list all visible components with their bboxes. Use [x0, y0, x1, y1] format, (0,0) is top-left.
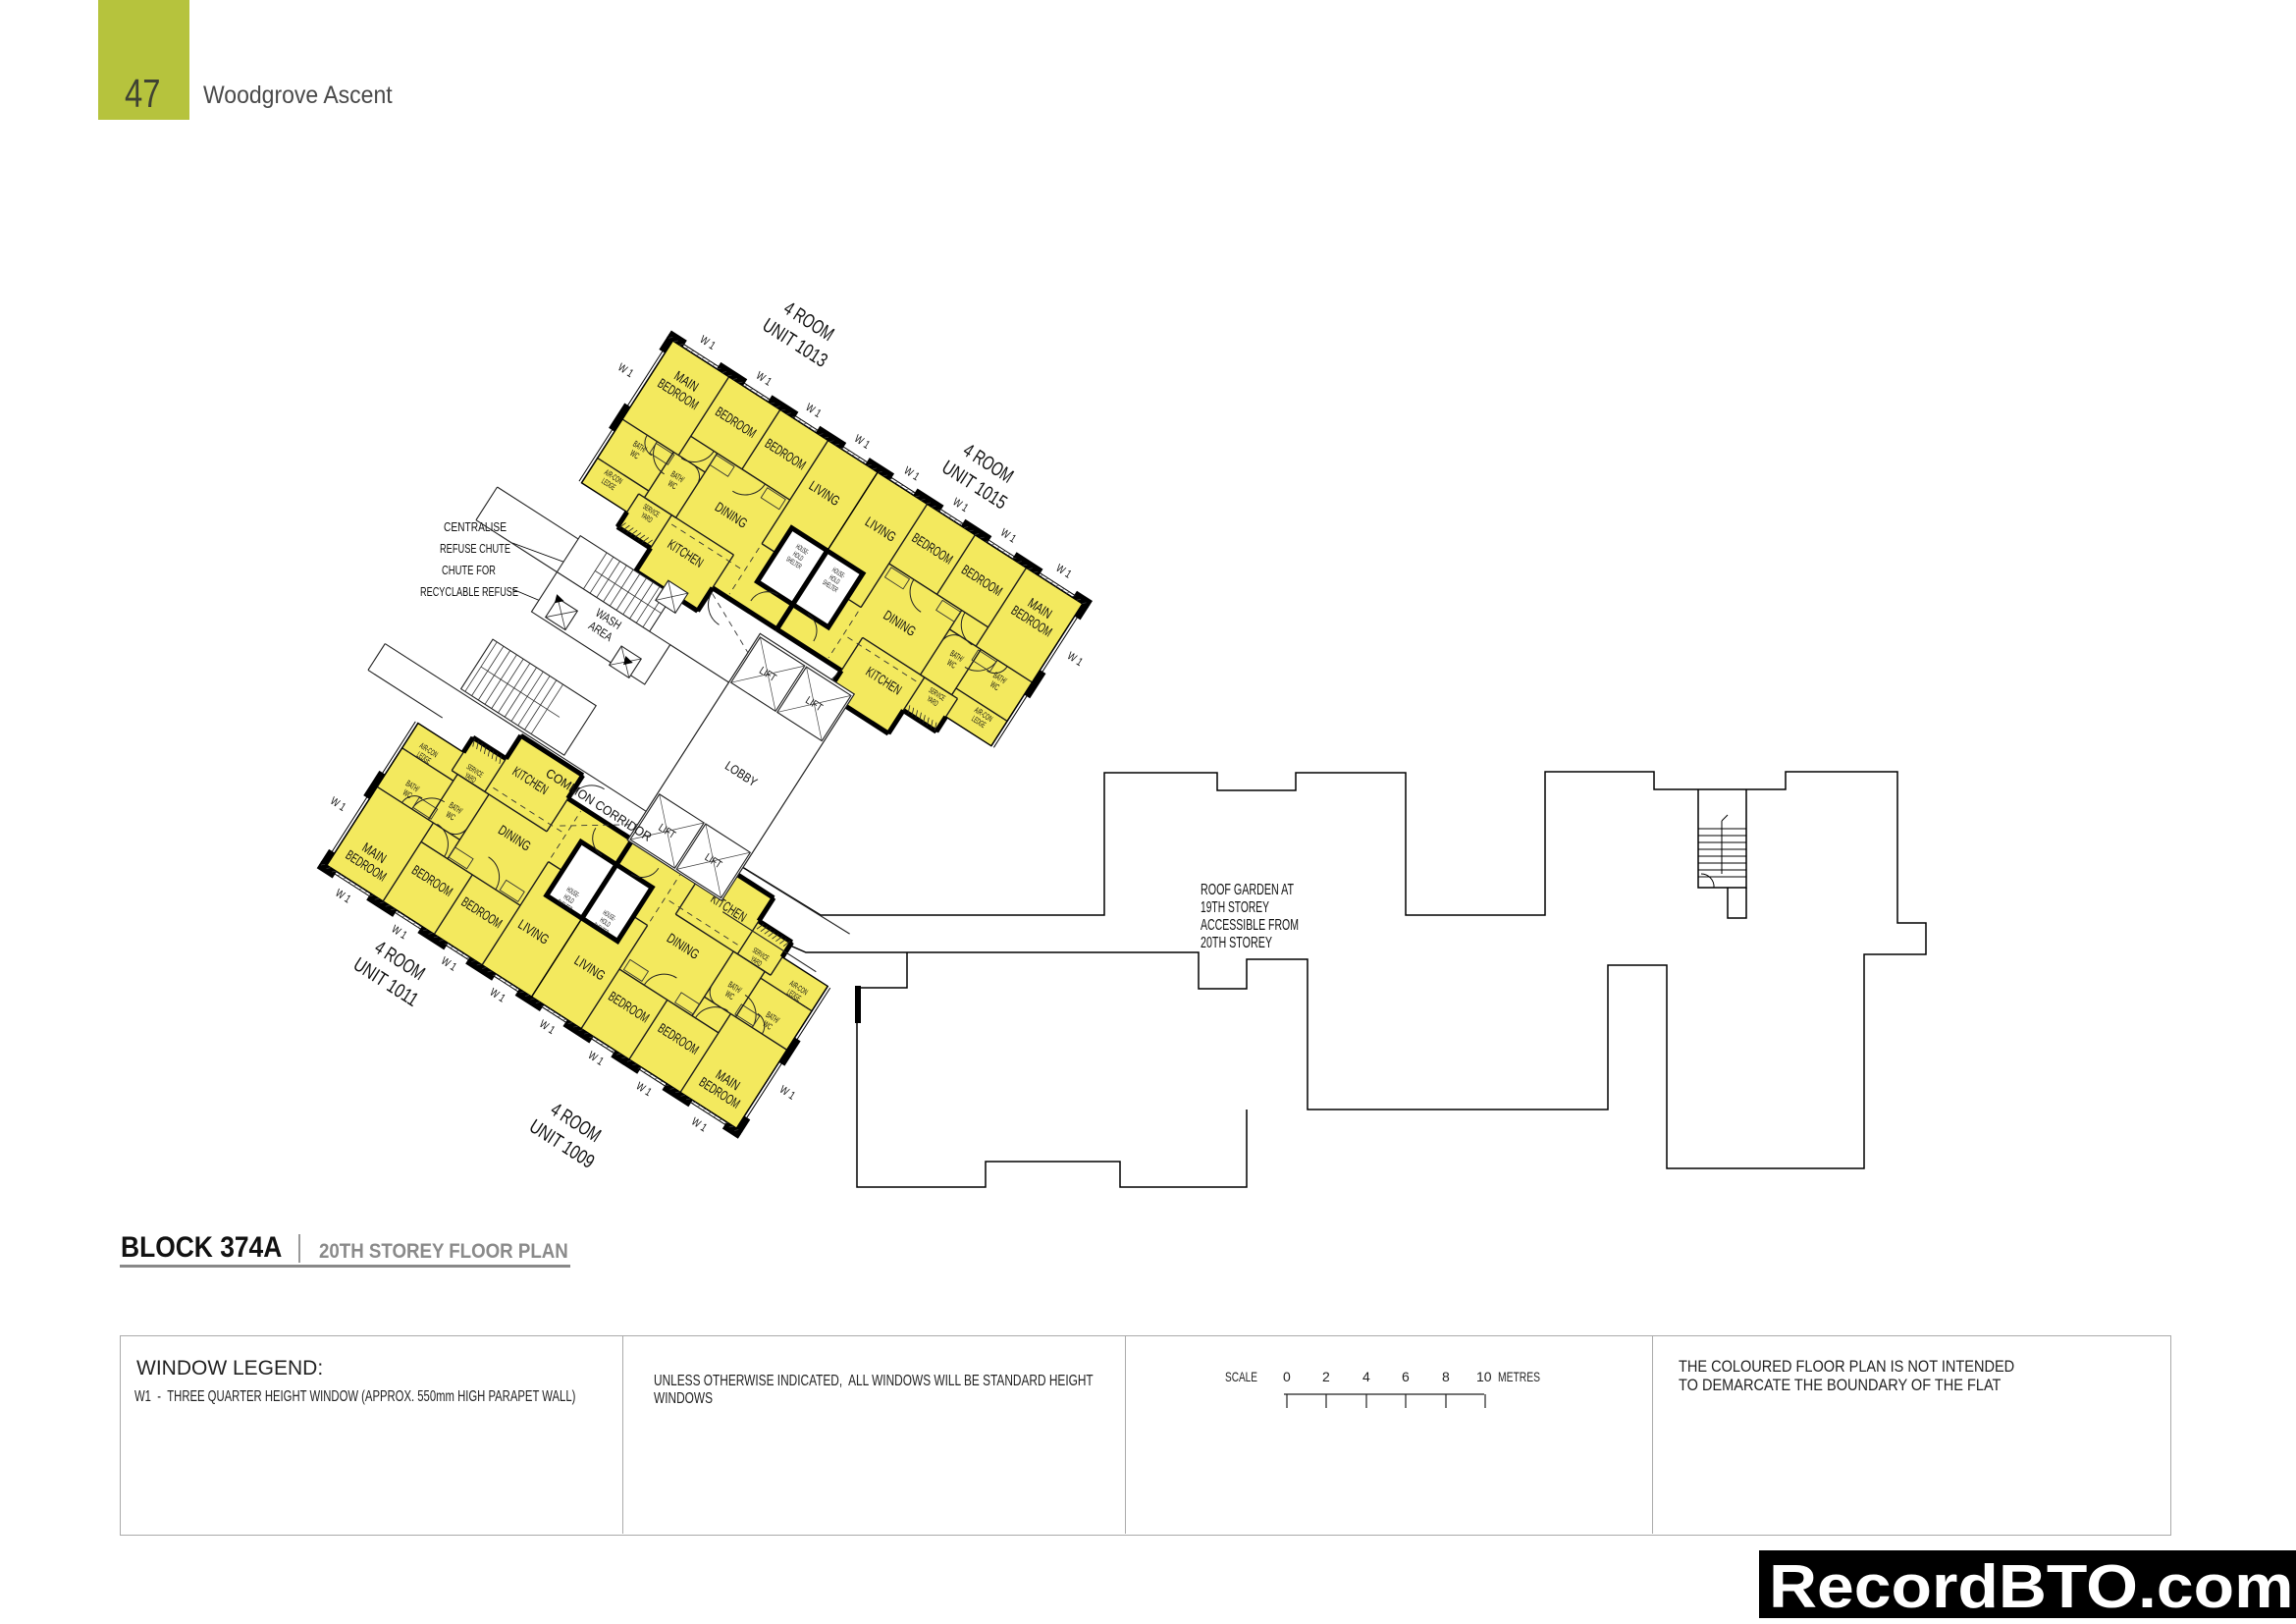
svg-text:CENTRALISE: CENTRALISE	[444, 519, 507, 534]
svg-text:SCALE: SCALE	[1225, 1369, 1257, 1384]
svg-text:2: 2	[1322, 1369, 1330, 1384]
svg-text:0: 0	[1283, 1369, 1291, 1384]
svg-text:W 1: W 1	[586, 1050, 606, 1068]
svg-text:METRES: METRES	[1498, 1369, 1540, 1384]
svg-text:W 1: W 1	[803, 402, 823, 420]
svg-text:W 1: W 1	[998, 527, 1018, 546]
svg-text:W 1: W 1	[615, 361, 635, 380]
svg-text:W 1: W 1	[1053, 563, 1073, 581]
svg-text:19TH STOREY: 19TH STOREY	[1201, 899, 1269, 916]
svg-text:W 1: W 1	[333, 888, 352, 906]
svg-text:W 1: W 1	[689, 1116, 709, 1135]
svg-text:W 1: W 1	[902, 465, 922, 484]
svg-text:8: 8	[1442, 1369, 1450, 1384]
svg-text:CHUTE FOR: CHUTE FOR	[442, 563, 496, 577]
svg-text:W 1: W 1	[754, 370, 774, 389]
svg-text:RECYCLABLE REFUSE: RECYCLABLE REFUSE	[420, 584, 518, 599]
svg-text:ACCESSIBLE FROM: ACCESSIBLE FROM	[1201, 917, 1299, 934]
svg-text:W 1: W 1	[698, 334, 718, 352]
svg-text:W 1: W 1	[852, 433, 872, 452]
svg-text:W 1: W 1	[634, 1080, 654, 1099]
svg-text:20TH STOREY: 20TH STOREY	[1201, 935, 1272, 951]
svg-text:6: 6	[1402, 1369, 1410, 1384]
svg-text:W 1: W 1	[537, 1018, 557, 1037]
svg-text:10: 10	[1476, 1369, 1492, 1384]
svg-text:W 1: W 1	[439, 955, 458, 974]
svg-text:REFUSE CHUTE: REFUSE CHUTE	[440, 541, 510, 556]
svg-text:W 1: W 1	[328, 795, 347, 814]
svg-text:W 1: W 1	[1065, 650, 1085, 669]
svg-text:4: 4	[1362, 1369, 1370, 1384]
svg-text:ROOF GARDEN AT: ROOF GARDEN AT	[1201, 882, 1294, 898]
svg-text:W 1: W 1	[390, 924, 409, 943]
svg-text:W 1: W 1	[777, 1084, 797, 1103]
svg-text:W 1: W 1	[950, 496, 970, 514]
svg-text:W 1: W 1	[488, 987, 507, 1005]
